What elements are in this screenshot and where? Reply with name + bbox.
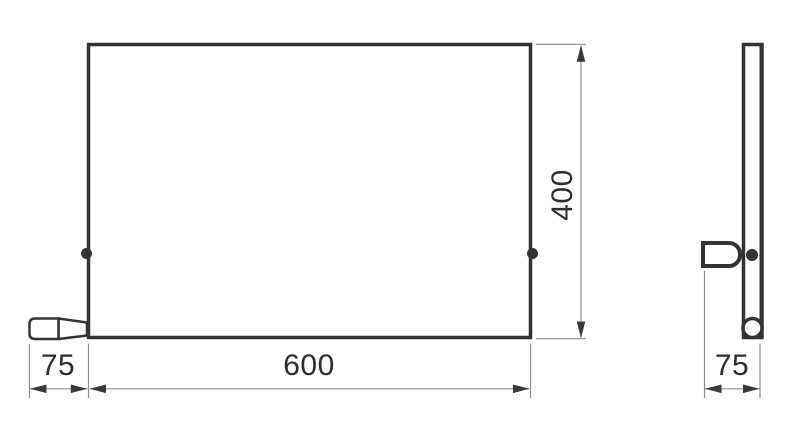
- side-panel-outline: [744, 45, 763, 338]
- knob-neck: [59, 319, 88, 340]
- arrowhead-up: [577, 45, 586, 62]
- wall-bracket-side-view: [701, 241, 742, 268]
- knob-body: [30, 319, 59, 340]
- front-view: [30, 45, 539, 340]
- front-panel-outline: [89, 45, 531, 338]
- arrowhead-down: [577, 322, 586, 339]
- dim-label-width: 600: [259, 351, 359, 381]
- arrowhead-left: [705, 385, 722, 394]
- side-view: [743, 44, 763, 338]
- bracket-pin-dot: [746, 249, 758, 261]
- arrowhead-right: [71, 385, 88, 394]
- arrowhead-left: [30, 385, 47, 394]
- dim-label-overhang: 75: [18, 351, 98, 381]
- drawing-linework: [0, 0, 800, 433]
- arrowhead-left: [90, 385, 107, 394]
- mount-tab-right: [527, 248, 538, 259]
- dim-label-height: 400: [548, 145, 578, 245]
- mount-tab-left: [81, 248, 92, 259]
- arrowhead-right: [513, 385, 530, 394]
- knob-side-circle: [743, 319, 762, 338]
- arrowhead-right: [743, 385, 760, 394]
- dim-label-depth: 75: [692, 351, 772, 381]
- panel-dimension-drawing: 600 400 75 75: [0, 0, 800, 433]
